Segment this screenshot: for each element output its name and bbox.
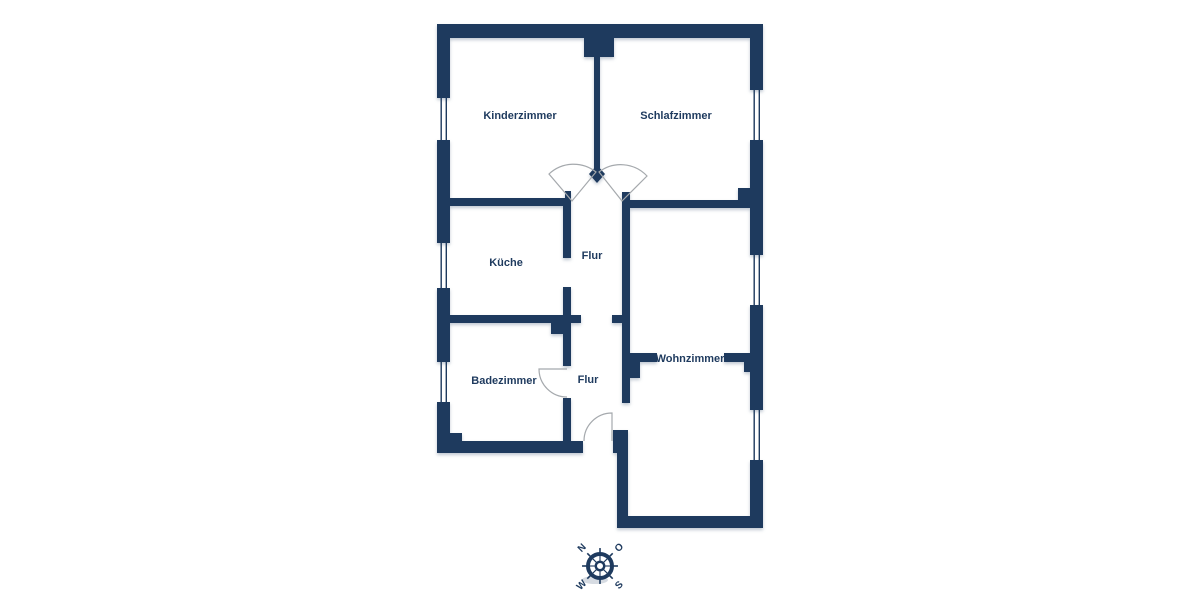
window-schlafzimmer [754, 90, 755, 140]
wall-entrance-block [613, 430, 628, 453]
window-kinderzimmer [446, 98, 447, 140]
wall-outer-left [437, 140, 450, 243]
compass: N O S W [556, 523, 645, 600]
wall-wohnzimmer-mid-right [724, 353, 750, 362]
wall-kueche-top [448, 198, 571, 206]
wall-outer-top [437, 24, 763, 38]
wall-corner-block [448, 433, 462, 441]
room-label-kueche: Küche [489, 257, 523, 269]
windows-group [441, 90, 761, 460]
wall-outer-right [750, 140, 763, 188]
wall-flur-stub-right [612, 315, 622, 323]
compass-letter-north: N [576, 542, 589, 555]
room-label-schlafzimmer: Schlafzimmer [640, 110, 712, 122]
room-label-flur-unten: Flur [578, 374, 599, 386]
wall-wohnzimmer-top [622, 200, 750, 208]
wall-door-jamb [622, 192, 630, 200]
wall-outer-right [750, 24, 763, 90]
wall-flur-wohnzimmer [622, 208, 630, 403]
window-wohnzimmer-1 [759, 255, 760, 305]
window-wohnzimmer-2 [759, 410, 760, 460]
wall-wohnzimmer-mid-left [622, 353, 657, 362]
wall-outer-right [750, 305, 763, 410]
window-badezimmer [441, 362, 442, 402]
wall-outer-bottom-left [437, 441, 583, 453]
window-schlafzimmer [759, 90, 760, 140]
room-label-wohnzimmer: Wohnzimmer [656, 353, 726, 365]
compass-rose: N O S W [556, 523, 645, 600]
floor-plan-page: Kinderzimmer Schlafzimmer Küche Flur Bad… [0, 0, 1200, 600]
window-wohnzimmer-2 [754, 410, 755, 460]
compass-letter-east: O [613, 541, 626, 554]
wall-bad-top [450, 315, 571, 323]
wall-bad-right [563, 398, 571, 442]
wall-jamb-block [744, 362, 752, 372]
window-kinderzimmer [441, 98, 442, 140]
double-door-left-swing [549, 164, 596, 201]
wall-jamb-block [630, 362, 640, 378]
window-badezimmer [446, 362, 447, 402]
wall-outer-left [437, 288, 450, 362]
entrance-door-swing [584, 413, 612, 441]
wall-bedroom-partition [594, 57, 600, 170]
room-label-kinderzimmer: Kinderzimmer [483, 110, 557, 122]
wall-outer-left [437, 24, 450, 98]
compass-letter-south: S [613, 579, 626, 592]
badezimmer-door-swing [539, 369, 567, 397]
window-kueche [441, 243, 442, 288]
room-label-flur-oben: Flur [582, 250, 603, 262]
wall-chimney-block [584, 38, 614, 57]
window-kueche [446, 243, 447, 288]
room-label-badezimmer: Badezimmer [471, 375, 537, 387]
floor-plan-svg: Kinderzimmer Schlafzimmer Küche Flur Bad… [0, 0, 1200, 600]
wall-pillar [551, 323, 571, 334]
wall-outer-right [750, 208, 763, 255]
wall-kueche-flur [563, 198, 571, 258]
window-wohnzimmer-1 [754, 255, 755, 305]
wall-partition-tip [589, 165, 605, 183]
wall-outer-bottom-right [617, 516, 763, 528]
wall-flur-stub-left [571, 315, 581, 323]
walls-group [437, 24, 763, 528]
